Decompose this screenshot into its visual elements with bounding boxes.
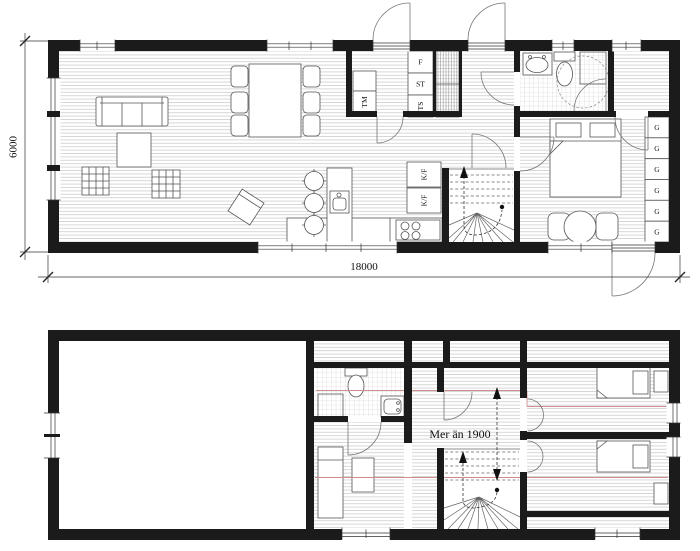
- floor-plan-drawing: TM F ST TS K/F K/F: [0, 0, 700, 551]
- width-dimension-label: 18000: [350, 261, 378, 273]
- dining-table: [249, 64, 301, 137]
- plan-svg: TM F ST TS K/F K/F: [0, 0, 700, 551]
- dining-chair: [231, 115, 248, 136]
- walk-line-start-dot: [495, 488, 499, 492]
- wardrobes: G G G G G G: [645, 117, 669, 242]
- pillow: [633, 445, 648, 468]
- wardrobe-label: G: [654, 144, 660, 153]
- fridge-freezer-upper-label: K/F: [420, 169, 429, 181]
- ground-floor-plan: TM F ST TS K/F K/F: [8, 3, 691, 296]
- dining-chair: [231, 66, 248, 87]
- cleaning-cabinet-label: ST: [416, 80, 425, 89]
- dimension-height: 6000: [8, 33, 49, 260]
- desk: [352, 458, 374, 492]
- terrace-door-arc: [612, 253, 655, 296]
- entrance-door-arc: [468, 3, 505, 40]
- pillow: [556, 123, 581, 137]
- low-ceiling-strip: [527, 517, 669, 529]
- low-ceiling-strip: [450, 341, 520, 362]
- fridge-freezer-lower-label: K/F: [420, 195, 429, 207]
- kitchen-island: [327, 168, 352, 242]
- pillow: [633, 371, 648, 394]
- low-ceiling-strip: [412, 341, 443, 362]
- chair: [596, 213, 618, 240]
- bar-stool: [305, 172, 324, 191]
- nightstand: [654, 371, 668, 392]
- height-annotation-label: Mer än 1900: [429, 427, 490, 441]
- coffee-table: [117, 133, 151, 167]
- low-ceiling-strip: [527, 341, 669, 362]
- wardrobe-label: G: [654, 165, 660, 174]
- walk-line-start-dot: [500, 205, 504, 209]
- entrance-door-threshold: [468, 40, 505, 52]
- dining-chair: [303, 92, 320, 113]
- sauna-floor: [614, 51, 669, 111]
- dining-chair: [231, 92, 248, 113]
- bar-stools: [302, 169, 326, 237]
- wardrobe-label: G: [654, 186, 660, 195]
- double-bed: [550, 119, 621, 197]
- pillow: [590, 123, 615, 137]
- round-table: [564, 211, 596, 243]
- wardrobe-label: G: [654, 123, 660, 132]
- bedroom-table-set: [548, 211, 618, 243]
- upper-staircase-area: [444, 448, 520, 529]
- staircase-area: [449, 168, 514, 242]
- height-dimension-label: 6000: [8, 136, 20, 159]
- drying-cabinet-label: TS: [416, 102, 425, 111]
- dimension-width: 18000: [38, 255, 690, 283]
- dining-set: [231, 64, 320, 137]
- bed: [318, 447, 343, 518]
- bar-stool: [305, 194, 324, 213]
- toilet-tank: [554, 52, 575, 61]
- utility-counter: [353, 71, 376, 91]
- open-attic-room: [59, 341, 306, 529]
- armchair: [82, 167, 109, 195]
- entrance-door-threshold: [373, 40, 410, 52]
- washing-machine-label: TM: [360, 96, 369, 108]
- sofa: [96, 97, 168, 126]
- wardrobe-label: G: [654, 228, 660, 237]
- wardrobe-label: G: [654, 207, 660, 216]
- freezer-label: F: [418, 58, 422, 67]
- dining-chair: [303, 66, 320, 87]
- entrance-door-arc: [373, 3, 410, 40]
- dining-chair: [303, 115, 320, 136]
- terrace-door-threshold: [612, 242, 655, 254]
- armchair: [152, 170, 180, 198]
- toilet-bowl: [348, 375, 364, 397]
- bar-stool: [305, 216, 324, 235]
- low-ceiling-strip: [314, 341, 404, 362]
- upper-floor-plan: Mer än 1900: [44, 330, 681, 540]
- toilet-bowl: [557, 62, 573, 86]
- nightstand: [654, 483, 668, 504]
